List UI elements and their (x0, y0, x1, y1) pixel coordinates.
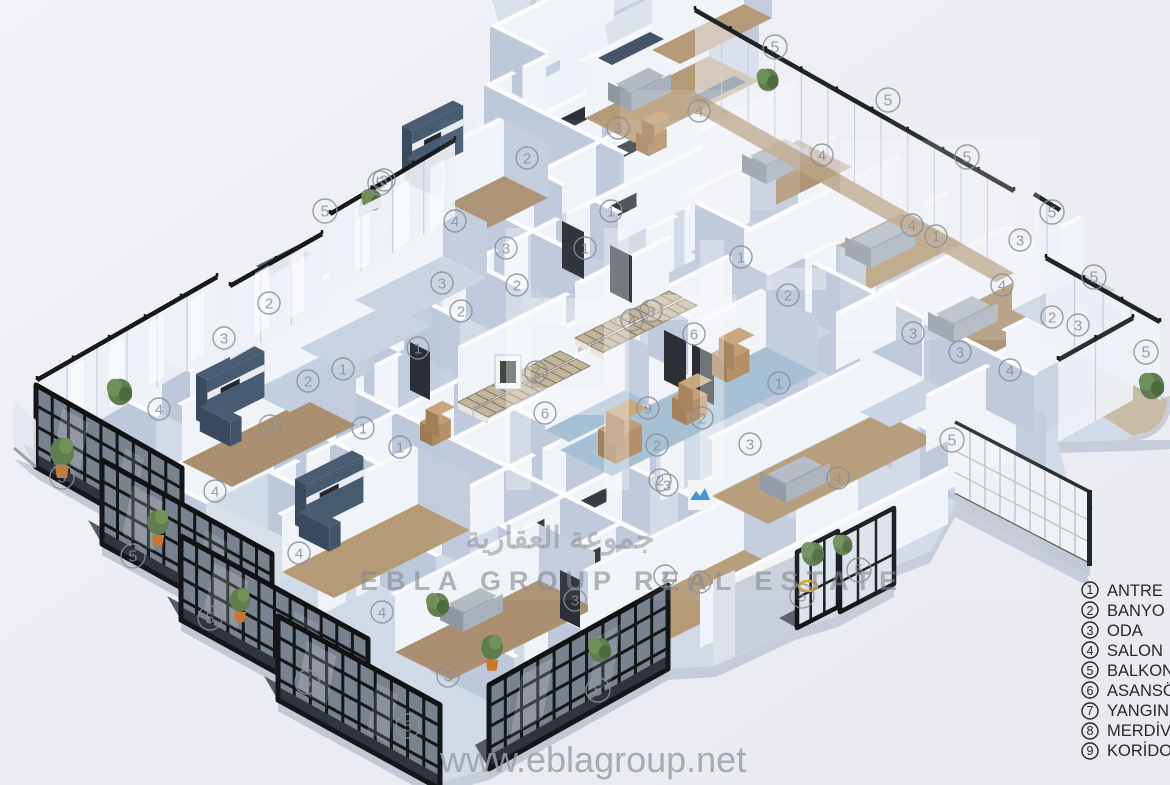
svg-text:2: 2 (457, 303, 465, 320)
svg-text:5: 5 (948, 433, 957, 450)
svg-text:1: 1 (775, 375, 783, 392)
svg-text:1: 1 (932, 228, 940, 245)
svg-text:1: 1 (581, 240, 589, 257)
svg-text:4: 4 (1087, 644, 1094, 658)
svg-text:BANYO: BANYO (1107, 602, 1165, 620)
svg-text:4: 4 (908, 217, 916, 234)
svg-text:4: 4 (695, 103, 703, 120)
svg-text:3: 3 (444, 668, 452, 685)
svg-text:ANTRE: ANTRE (1107, 582, 1163, 600)
svg-text:ASANSÖR: ASANSÖR (1107, 682, 1170, 700)
svg-text:1: 1 (1087, 583, 1094, 597)
svg-text:4: 4 (1006, 362, 1014, 379)
svg-text:5: 5 (58, 470, 67, 487)
svg-text:2: 2 (1048, 309, 1056, 326)
svg-text:5: 5 (771, 40, 780, 57)
svg-text:3: 3 (571, 592, 579, 609)
svg-text:MERDİVEN: MERDİVEN (1107, 721, 1170, 740)
svg-text:6: 6 (690, 326, 698, 343)
svg-text:4: 4 (451, 213, 459, 230)
svg-text:ODA: ODA (1107, 622, 1143, 640)
svg-text:6: 6 (541, 405, 549, 422)
svg-text:1: 1 (737, 249, 745, 266)
svg-text:2: 2 (784, 287, 792, 304)
svg-text:9: 9 (1087, 744, 1094, 758)
svg-text:4: 4 (834, 470, 842, 487)
svg-text:3: 3 (1074, 317, 1082, 334)
svg-text:4: 4 (818, 147, 826, 164)
svg-text:4: 4 (998, 277, 1006, 294)
svg-text:2: 2 (304, 373, 312, 390)
svg-text:KORİDOR: KORİDOR (1107, 741, 1170, 760)
svg-text:3: 3 (909, 325, 917, 342)
svg-text:5: 5 (129, 549, 138, 566)
svg-text:1: 1 (359, 420, 367, 437)
svg-text:5: 5 (855, 563, 864, 580)
svg-text:5: 5 (321, 204, 330, 221)
svg-text:EBLA GROUP REAL ESTATE: EBLA GROUP REAL ESTATE (360, 566, 905, 596)
svg-text:جموعة العقارية: جموعة العقارية (466, 522, 655, 556)
svg-text:4: 4 (211, 483, 219, 500)
svg-text:2: 2 (513, 277, 521, 294)
svg-text:5: 5 (206, 611, 215, 628)
svg-text:5: 5 (884, 93, 893, 110)
svg-text:3: 3 (438, 275, 446, 292)
svg-text:3: 3 (380, 172, 388, 189)
svg-text:2: 2 (656, 472, 664, 489)
svg-text:4: 4 (378, 604, 386, 621)
svg-text:3: 3 (956, 344, 964, 361)
svg-text:2: 2 (661, 568, 669, 585)
svg-text:1: 1 (396, 439, 404, 456)
svg-text:8: 8 (1087, 724, 1094, 738)
svg-text:SALON: SALON (1107, 642, 1163, 660)
svg-text:1: 1 (414, 340, 422, 357)
svg-text:9: 9 (644, 400, 652, 417)
svg-text:5: 5 (303, 675, 312, 692)
svg-text:3: 3 (1016, 232, 1024, 249)
svg-text:2: 2 (265, 295, 273, 312)
svg-text:5: 5 (404, 719, 413, 736)
svg-text:3: 3 (266, 418, 274, 435)
svg-text:5: 5 (1048, 205, 1057, 222)
svg-text:www.eblagroup.net: www.eblagroup.net (439, 739, 746, 780)
svg-text:BALKON: BALKON (1107, 662, 1170, 680)
svg-text:5: 5 (963, 150, 972, 167)
svg-text:5: 5 (594, 683, 603, 700)
svg-text:3: 3 (502, 240, 510, 257)
svg-text:4: 4 (696, 574, 704, 591)
svg-text:5: 5 (1090, 270, 1099, 287)
svg-text:3: 3 (614, 120, 622, 137)
svg-text:2: 2 (1087, 604, 1094, 618)
svg-text:YANGIN MERDİVENİ: YANGIN MERDİVENİ (1107, 701, 1170, 720)
svg-text:4: 4 (628, 312, 636, 329)
svg-text:1: 1 (339, 361, 347, 378)
svg-text:3: 3 (1087, 624, 1094, 638)
svg-text:5: 5 (1087, 664, 1094, 678)
svg-text:6: 6 (1087, 684, 1094, 698)
svg-text:4: 4 (155, 401, 163, 418)
svg-text:7: 7 (1087, 704, 1094, 718)
svg-text:2: 2 (653, 437, 661, 454)
svg-text:7: 7 (532, 364, 540, 381)
svg-text:1: 1 (607, 203, 615, 220)
svg-text:2: 2 (698, 410, 706, 427)
svg-text:8: 8 (647, 303, 655, 320)
svg-text:4: 4 (295, 545, 303, 562)
svg-text:2: 2 (523, 150, 531, 167)
svg-text:5: 5 (1142, 345, 1151, 362)
svg-text:5: 5 (798, 589, 807, 606)
svg-text:3: 3 (746, 436, 754, 453)
svg-text:3: 3 (220, 330, 228, 347)
